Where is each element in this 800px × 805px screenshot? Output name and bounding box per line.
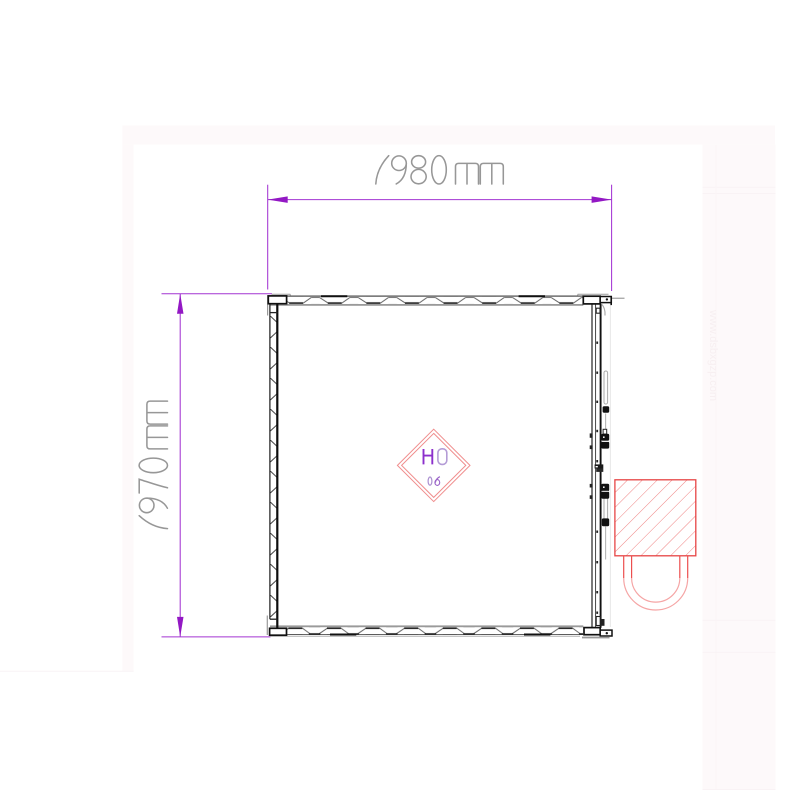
svg-text:www.dsbxgzp.com: www.dsbxgzp.com: [707, 309, 719, 401]
